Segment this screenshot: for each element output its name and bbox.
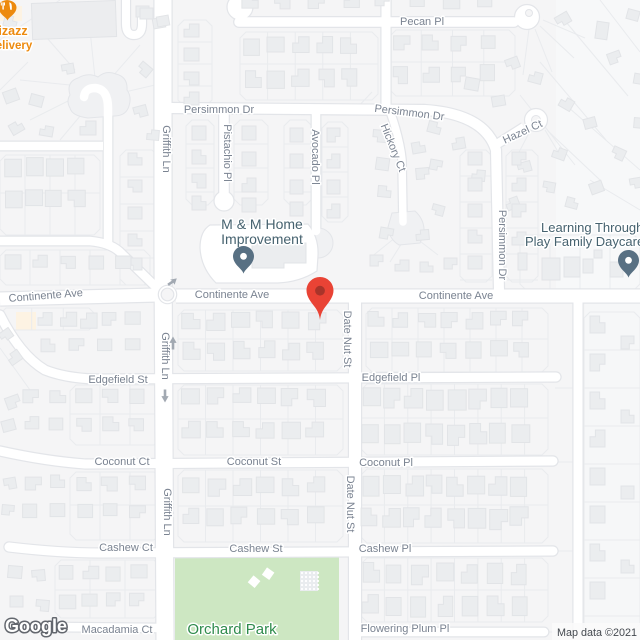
svg-text:Persimmon Dr: Persimmon Dr (496, 210, 508, 281)
svg-text:Continente Ave: Continente Ave (419, 290, 493, 302)
svg-text:izazz: izazz (0, 24, 28, 38)
svg-text:Macadamia Ct: Macadamia Ct (82, 624, 153, 636)
svg-text:Date Nut St: Date Nut St (341, 311, 353, 368)
svg-text:Map data ©2021: Map data ©2021 (557, 627, 637, 639)
svg-text:Learning Through: Learning Through (541, 220, 640, 235)
svg-text:Edgefield St: Edgefield St (88, 374, 147, 386)
svg-text:Coconut Pl: Coconut Pl (359, 457, 413, 469)
svg-text:Edgefield Pl: Edgefield Pl (362, 372, 421, 384)
svg-text:Coconut Ct: Coconut Ct (94, 456, 149, 468)
svg-text:Pistachio Pl: Pistachio Pl (221, 124, 233, 181)
svg-text:Improvement: Improvement (221, 231, 303, 247)
svg-text:Griffith Ln: Griffith Ln (159, 332, 171, 380)
svg-text:Avocado Pl: Avocado Pl (309, 129, 321, 184)
svg-text:elivery: elivery (0, 40, 33, 52)
svg-text:Google: Google (5, 616, 67, 636)
svg-text:Persimmon Dr: Persimmon Dr (184, 104, 255, 116)
svg-text:Cashew St: Cashew St (229, 543, 282, 555)
svg-text:Continente Ave: Continente Ave (195, 289, 269, 301)
svg-text:Griffith Ln: Griffith Ln (161, 488, 173, 536)
svg-text:Orchard Park: Orchard Park (187, 621, 277, 638)
svg-text:M & M Home: M & M Home (221, 216, 303, 232)
svg-text:Pecan Pl: Pecan Pl (400, 16, 444, 28)
svg-text:Cashew Pl: Cashew Pl (359, 543, 412, 555)
svg-text:Coconut St: Coconut St (227, 456, 281, 468)
svg-text:Flowering Plum Pl: Flowering Plum Pl (361, 623, 450, 635)
svg-text:Cashew Ct: Cashew Ct (99, 542, 153, 554)
svg-text:Date Nut St: Date Nut St (344, 476, 356, 533)
svg-text:Play Family Daycare: Play Family Daycare (525, 234, 640, 249)
svg-text:Griffith Ln: Griffith Ln (160, 125, 172, 173)
